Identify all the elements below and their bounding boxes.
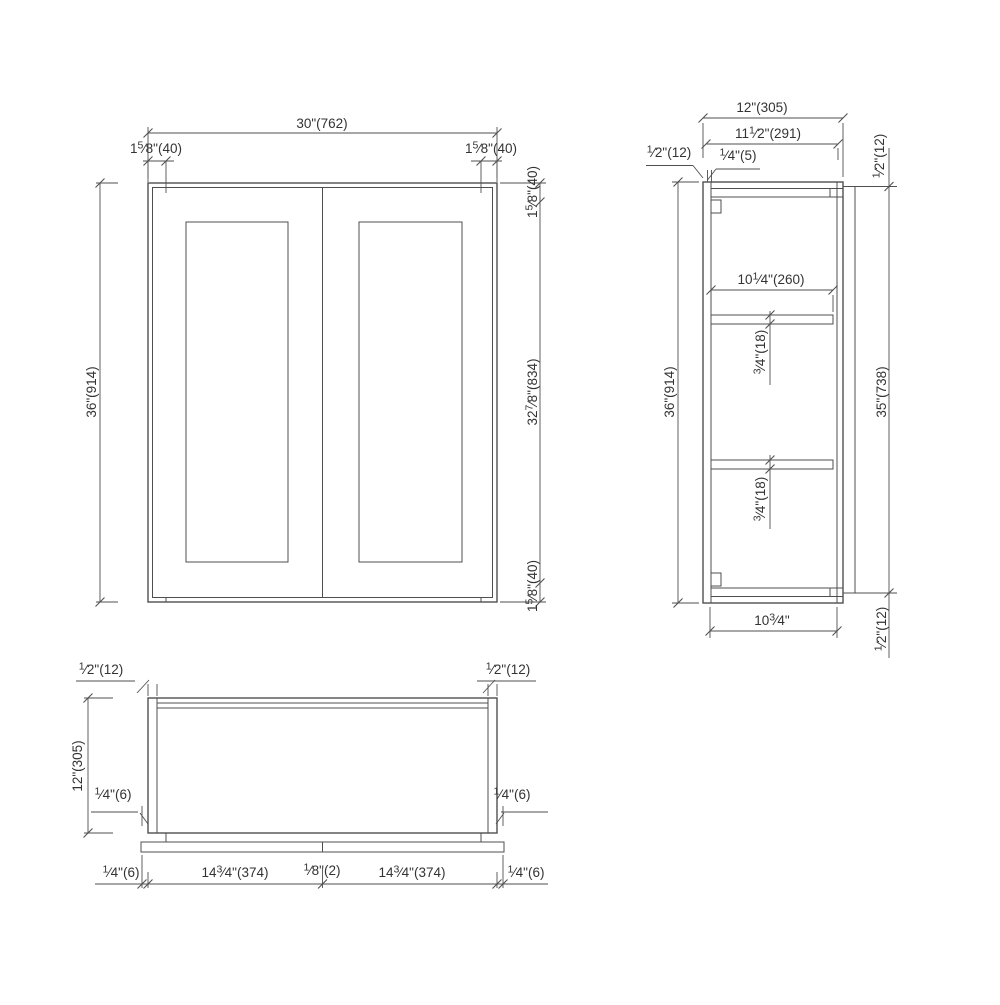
dim-side-bottom-depth-label: 103⁄4" xyxy=(754,612,790,629)
dim-front-width: 30"(762) xyxy=(144,116,502,178)
side-view: 12"(305) 111⁄2"(291) 1⁄2"(12) 1⁄4"(5) xyxy=(646,100,897,658)
cabinet-technical-drawing: 30"(762) 36"(914) 15⁄8"(40) 15⁄8 xyxy=(0,0,1000,1000)
dim-side-bottom-depth: 103⁄4" xyxy=(706,607,842,638)
dim-plan-door-right-width-label: 143⁄4"(374) xyxy=(379,864,446,881)
dim-side-height-label: 36"(914) xyxy=(662,366,677,417)
plan-cabinet-outline xyxy=(148,698,497,833)
dim-front-height: 36"(914) xyxy=(84,179,118,607)
side-cabinet-outline xyxy=(703,182,843,603)
dim-side-top-rail-label: 1⁄2"(12) xyxy=(871,134,888,178)
dim-plan-depth: 12"(305) xyxy=(70,694,113,838)
dim-side-back-height-label: 35"(738) xyxy=(874,366,889,417)
dim-side-shelf-depth: 101⁄4"(260) xyxy=(707,271,838,313)
dim-front-stile-left-label: 15⁄8"(40) xyxy=(130,140,182,157)
front-left-door-panel xyxy=(186,222,288,562)
dim-side-door-thickness: 1⁄2"(12) xyxy=(646,144,703,179)
dim-side-door-thickness-label: 1⁄2"(12) xyxy=(647,144,691,161)
drawing-page: 30"(762) 36"(914) 15⁄8"(40) 15⁄8 xyxy=(0,0,1000,1000)
front-right-door-panel xyxy=(359,222,462,562)
dim-plan-door-gap-right-label: 1⁄4"(6) xyxy=(494,786,531,803)
dim-front-stile-right: 15⁄8"(40) xyxy=(465,140,517,194)
dim-front-stile-right-label: 15⁄8"(40) xyxy=(465,140,517,157)
side-hang-rail-top xyxy=(711,200,721,213)
dim-front-right-stack: 15⁄8"(40) 327⁄8"(834) 15⁄8"(40) xyxy=(500,166,546,612)
dim-front-stile-left: 15⁄8"(40) xyxy=(130,140,182,194)
dim-plan-side-thickness-right-label: 1⁄2"(12) xyxy=(486,661,530,678)
dim-front-height-label: 36"(914) xyxy=(84,366,99,417)
dim-side-top-reveal-label: 1⁄4"(5) xyxy=(720,147,757,164)
dim-plan-center-gap-label: 1⁄8"(2) xyxy=(304,862,341,879)
dim-side-bottom-rail-label: 1⁄2"(12) xyxy=(873,607,890,651)
dim-side-height: 36"(914) xyxy=(662,178,699,608)
dim-front-opening-label: 327⁄8"(834) xyxy=(524,359,541,426)
dim-plan-door-left-width-label: 143⁄4"(374) xyxy=(202,864,269,881)
dim-front-rail-top-label: 15⁄8"(40) xyxy=(524,166,541,218)
dim-side-shelf-top-thickness-label: 3⁄4"(18) xyxy=(752,330,769,374)
dim-side-shelf-depth-label: 101⁄4"(260) xyxy=(738,271,805,288)
dim-plan-bottom-row: 1⁄4"(6) 143⁄4"(374) 1⁄8"(2) 143⁄4"(374) … xyxy=(95,855,548,889)
dim-plan-side-thickness-left-label: 1⁄2"(12) xyxy=(79,661,123,678)
plan-view: 1⁄2"(12) 1⁄2"(12) 12"(305) 1⁄4"(6) xyxy=(70,661,548,889)
dim-plan-side-thickness-right: 1⁄2"(12) xyxy=(477,661,536,697)
dim-plan-overhang-left-label: 1⁄4"(6) xyxy=(103,864,140,881)
side-back-rail xyxy=(843,187,855,594)
dim-front-width-label: 30"(762) xyxy=(296,116,347,131)
side-hang-rail-bottom xyxy=(711,573,721,586)
dim-plan-door-gap-left: 1⁄4"(6) xyxy=(91,786,148,827)
dim-side-shelf-top-thickness: 3⁄4"(18) xyxy=(752,311,775,386)
dim-side-shelf-bottom-thickness: 3⁄4"(18) xyxy=(752,455,775,529)
dim-side-depth-interior-label: 111⁄2"(291) xyxy=(735,125,801,142)
dim-plan-depth-label: 12"(305) xyxy=(70,740,85,791)
dim-plan-door-gap-right: 1⁄4"(6) xyxy=(494,786,548,827)
dim-plan-door-gap-left-label: 1⁄4"(6) xyxy=(95,786,132,803)
dim-side-depth-label: 12"(305) xyxy=(736,100,787,115)
dim-side-top-reveal: 1⁄4"(5) xyxy=(708,147,761,183)
front-view: 30"(762) 36"(914) 15⁄8"(40) 15⁄8 xyxy=(84,116,546,612)
dim-plan-side-thickness-left: 1⁄2"(12) xyxy=(76,661,157,697)
dim-side-shelf-bottom-thickness-label: 3⁄4"(18) xyxy=(752,477,769,521)
dim-plan-overhang-right-label: 1⁄4"(6) xyxy=(508,864,545,881)
